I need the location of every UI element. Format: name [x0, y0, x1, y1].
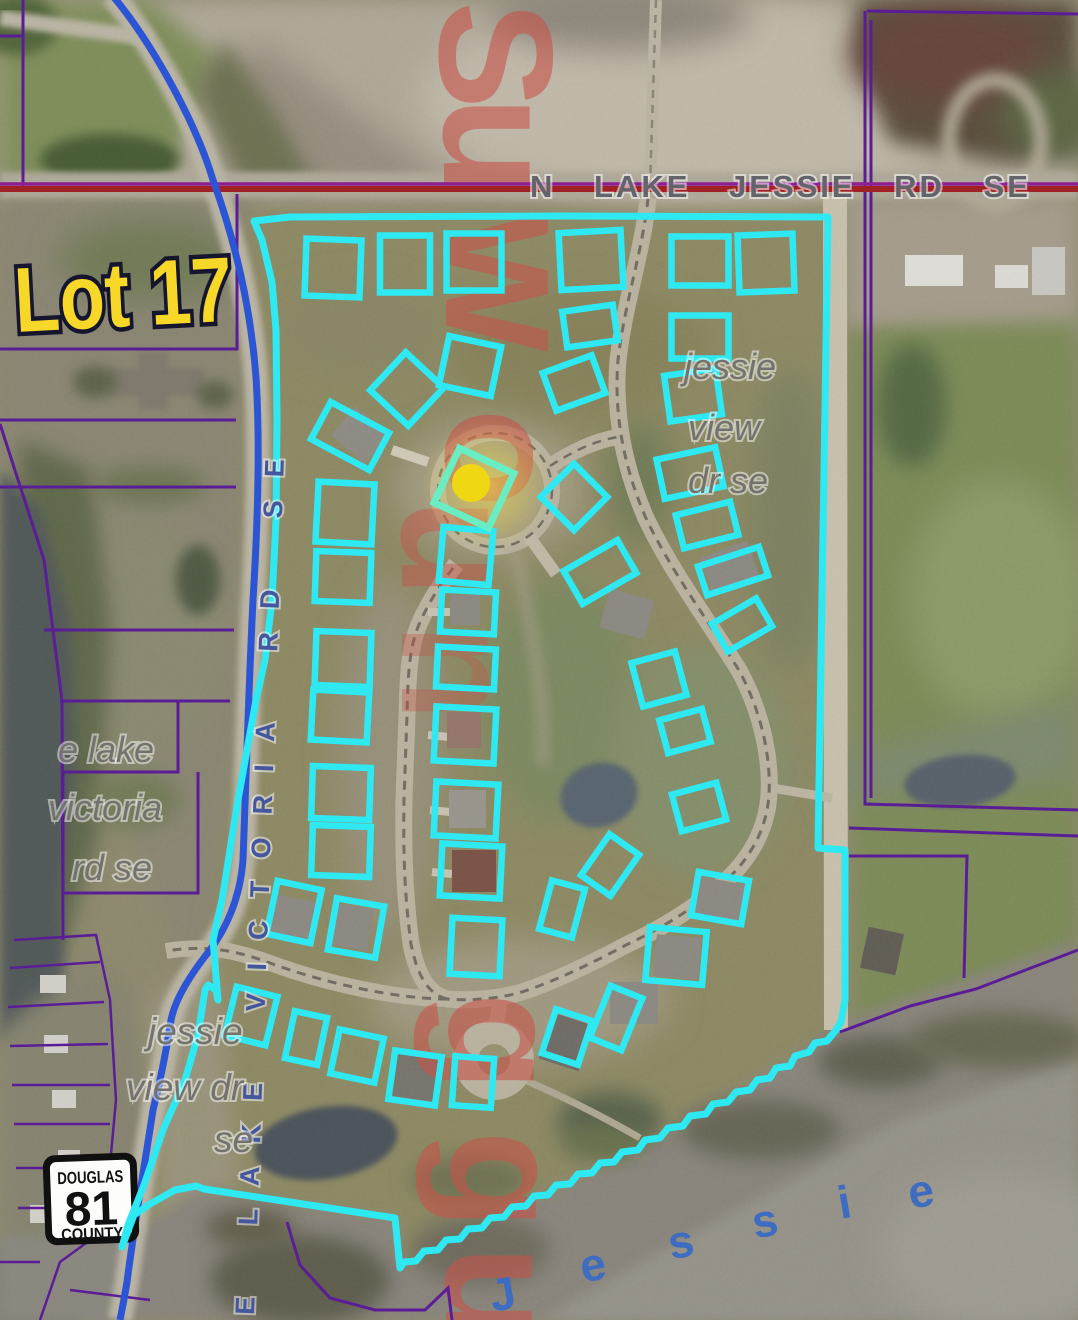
- svg-text:e lake: e lake: [58, 729, 154, 770]
- svg-text:Lot 17: Lot 17: [12, 239, 235, 352]
- svg-text:N LAKE JESSIE RD SE: N LAKE JESSIE RD SE: [530, 169, 1031, 204]
- svg-text:victoria: victoria: [48, 787, 162, 828]
- svg-text:jessie: jessie: [143, 1011, 243, 1052]
- svg-text:view dr: view dr: [126, 1067, 245, 1108]
- svg-text:view: view: [688, 407, 762, 448]
- svg-text:se: se: [214, 1119, 253, 1160]
- svg-text:S: S: [405, 1, 586, 109]
- svg-text:rd se: rd se: [72, 847, 152, 888]
- svg-text:jessie: jessie: [679, 346, 776, 387]
- svg-text:COUNTY: COUNTY: [61, 1225, 124, 1244]
- svg-text:dr se: dr se: [688, 460, 768, 501]
